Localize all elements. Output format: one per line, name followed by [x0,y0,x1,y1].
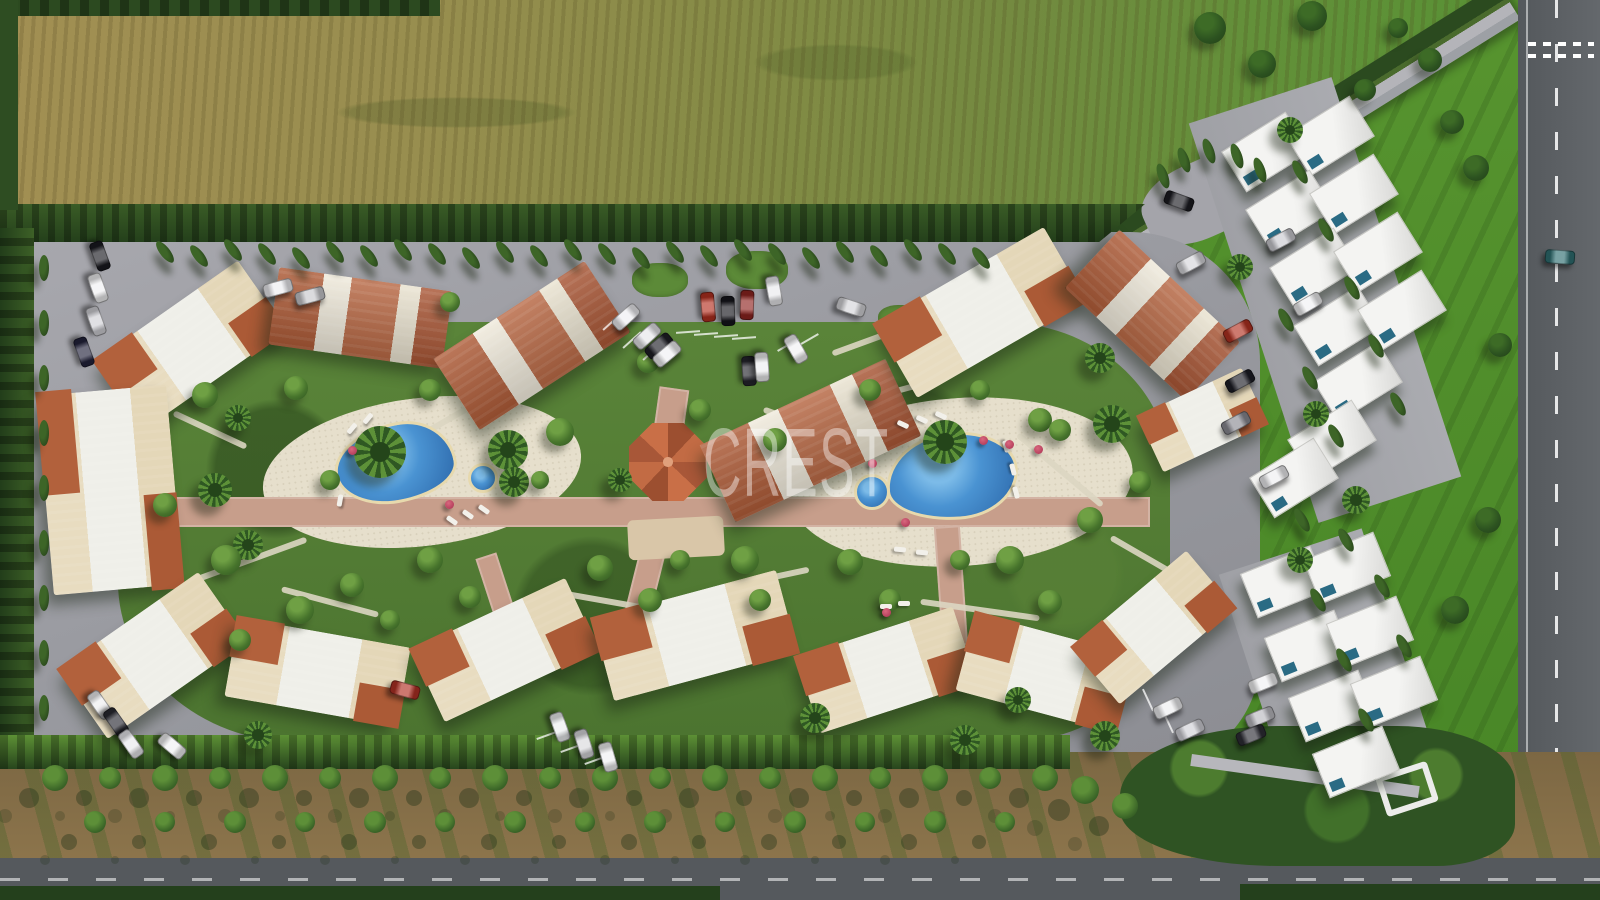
orchard-tree [855,812,875,832]
parked-car [754,352,770,383]
palm-tree [1005,687,1031,713]
garden-tree [284,376,308,400]
palm-tree [225,405,251,431]
garden-tree [1049,419,1071,441]
garden-tree [440,292,460,312]
orchard-tree [812,765,838,791]
garden-tree [670,550,690,570]
pool-umbrella [882,608,891,617]
road-lane-dashes [0,878,1600,881]
orchard-tree [575,812,595,832]
road-marking [1528,42,1594,46]
hedge-bottom-edge-left [0,886,720,900]
palm-tree [1342,486,1370,514]
orchard-tree [364,811,386,833]
parking-green-island [632,263,688,297]
garden-tree [587,555,613,581]
orchard-tree [99,767,121,789]
treeline-top-edge [0,0,440,16]
pool-umbrella [348,446,357,455]
garden-tree [749,589,771,611]
palm-tree [244,721,272,749]
pool-umbrella [1005,440,1014,449]
lawn-tree [1297,1,1327,31]
cypress-tree [39,475,49,501]
orchard-tree [482,765,508,791]
pool-umbrella [979,436,988,445]
lawn-tree [1388,18,1408,38]
treeline-left-edge [0,0,18,210]
hedge-left [0,228,34,768]
orchard-tree [1071,776,1099,804]
garden-tree [211,545,241,575]
garden-tree [731,546,759,574]
garden-tree [380,610,400,630]
orchard-tree [42,765,68,791]
palm-tree [608,468,632,492]
cypress-tree [39,255,49,281]
lawn-tree [1440,110,1464,134]
lawn-tree [1194,12,1226,44]
sun-lounger [916,549,928,555]
garden-tree [229,629,251,651]
palm-tree [1085,343,1115,373]
orchard-tree [715,812,735,832]
garden-tree [419,379,441,401]
orchard-tree [224,811,246,833]
garden-tree [459,586,481,608]
lawn-tree [1475,507,1501,533]
garden-tree [950,550,970,570]
kids-pool-left [468,463,498,493]
palm-tree [923,420,967,464]
cypress-tree [39,420,49,446]
garden-tree [286,596,314,624]
palm-tree [488,430,528,470]
palm-tree [1303,401,1329,427]
cypress-tree [39,530,49,556]
garden-tree [192,382,218,408]
pool-umbrella [445,500,454,509]
orchard-tree [1032,765,1058,791]
orchard-tree [922,765,948,791]
lawn-tree [1463,155,1489,181]
lawn-tree [1248,50,1276,78]
garden-tree [1038,590,1062,614]
parked-car [1545,249,1576,265]
garden-tree [546,418,574,446]
orchard-tree [979,767,1001,789]
parked-car [700,291,717,322]
orchard-tree [1112,793,1138,819]
garden-tree [970,380,990,400]
garden-tree [1077,507,1103,533]
lawn-tree [1354,79,1376,101]
orchard-tree [924,811,946,833]
garden-tree [153,493,177,517]
orchard-tree [504,811,526,833]
hedge-bottom-edge-right [1240,884,1600,900]
orchard-tree [702,765,728,791]
watermark-text: CREST [703,407,889,519]
palm-tree [1090,721,1120,751]
orchard-tree [295,812,315,832]
palm-tree [1287,547,1313,573]
palm-tree [1277,117,1303,143]
sun-lounger [898,601,910,606]
orchard-tree [209,767,231,789]
orchard-tree [435,812,455,832]
cypress-tree [39,310,49,336]
cypress-tree [39,365,49,391]
orchard-tree [262,765,288,791]
orchard-tree [319,767,341,789]
orchard-tree [372,765,398,791]
hedge-top [0,204,1145,242]
sun-lounger [894,546,906,552]
orchard-tree [84,811,106,833]
garden-tree [417,547,443,573]
palm-tree [1093,405,1131,443]
orchard-tree [429,767,451,789]
parked-car [720,296,735,326]
cypress-tree [39,640,49,666]
garden-tree [996,546,1024,574]
gazebo [629,423,707,501]
apartment-building [37,385,184,596]
orchard-tree [644,811,666,833]
pool-umbrella [901,518,910,527]
palm-tree [1227,254,1253,280]
cypress-tree [39,695,49,721]
aerial-render-canvas: CREST [0,0,1600,900]
orchard-tree [784,811,806,833]
garden-tree [859,379,881,401]
garden-tree [1129,471,1151,493]
palm-tree [499,467,529,497]
garden-tree [837,549,863,575]
pool-umbrella [1034,445,1043,454]
garden-tree [320,470,340,490]
lawn-tree [1488,333,1512,357]
orchard-tree [995,812,1015,832]
palm-tree [800,703,830,733]
tree-mass-bottom-right [1120,726,1515,866]
garden-tree [531,471,549,489]
palm-tree [354,426,406,478]
lawn-tree [1441,596,1469,624]
orchard-tree [649,767,671,789]
road-marking [1528,54,1594,58]
orchard-tree [759,767,781,789]
garden-tree [340,573,364,597]
orchard-tree [539,767,561,789]
parked-car [739,290,754,320]
palm-tree [198,473,232,507]
garden-tree [638,588,662,612]
orchard-tree [152,765,178,791]
cypress-tree [39,585,49,611]
lawn-tree [1418,48,1442,72]
orchard-tree [155,812,175,832]
palm-tree [950,725,980,755]
orchard-tree [869,767,891,789]
